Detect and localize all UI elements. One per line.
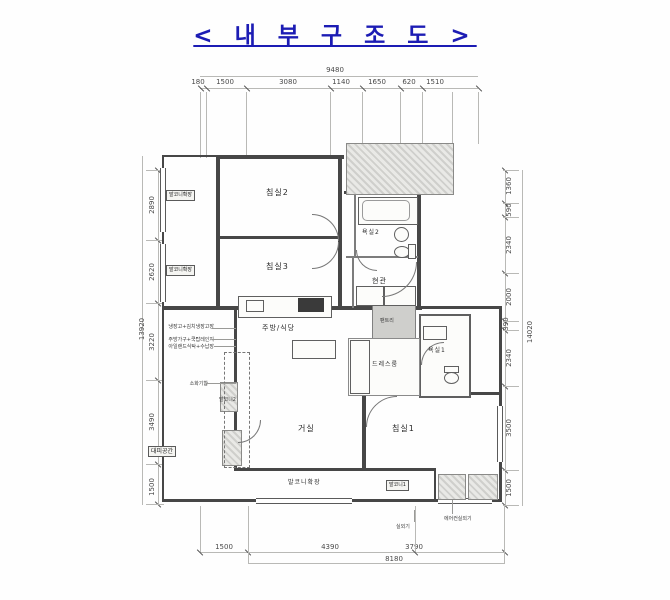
extension-line [503,217,519,218]
door-arc [356,250,377,271]
extension-line [200,92,201,158]
extension-line [452,92,453,144]
door-arc [312,214,339,241]
leader-line [212,328,236,329]
extension-line [503,273,519,274]
annotation-note4: 소화기함 [164,381,208,387]
room-label-bedroom2: 침실2 [266,188,289,197]
room-label-balcony2: 발코니2 [219,397,236,403]
wall [216,155,220,310]
leader-line [212,339,236,340]
leader-line [414,510,415,522]
refuge-dashed-zone [224,352,250,468]
dim-top-seg: 180 [190,78,206,86]
window [256,498,352,504]
dim-left-seg: 3490 [148,408,156,436]
dim-left-seg: 1500 [148,473,156,501]
dim-bottom-seg: 1500 [206,543,242,551]
wall [362,392,366,470]
extension-line [503,386,519,387]
leader-line [452,500,453,514]
extension-line [503,170,519,171]
outdoor-unit-box [438,474,466,500]
dim-line-bottom-chain [200,552,505,553]
wall [234,468,434,471]
outdoor-unit-box [468,474,498,500]
dim-top-seg: 1140 [324,78,358,86]
extension-line [146,504,164,505]
room-label-pantry: 팬트리 [380,318,394,324]
annotation-outdoor-unit: 실외기 [396,524,410,530]
extension-line [503,330,519,331]
wall [162,306,164,501]
annotation-note1: 냉장고+김치냉장고장 [158,324,214,330]
extension-line [478,92,479,144]
room-label-dressroom: 드레스룸 [372,360,398,369]
room-label-bedroom3: 침실3 [266,262,289,271]
extension-line [503,470,519,471]
dim-bottom-seg: 4390 [312,543,348,551]
toilet-tank [408,244,416,259]
room-label-entrance: 현관 [372,277,387,286]
wall [216,155,344,159]
washbasin [394,227,409,242]
dim-right-seg: 3500 [505,414,513,442]
leader-line [214,346,236,347]
stove [298,298,324,312]
dim-left-total: 13920 [138,311,146,347]
annotation-note3: 아일랜드식탁+수납장 [158,344,214,350]
door-arc [312,242,339,269]
dim-line-top-chain [200,88,478,89]
wall-partition [352,256,354,308]
extension-line [248,506,249,563]
dim-top-seg: 1500 [209,78,241,86]
extension-line [246,92,247,156]
dim-right-seg: 390 [502,313,510,335]
dim-line-right-total [522,170,523,506]
extension-line [206,92,207,158]
room-label-living: 거실 [298,424,315,433]
extension-line [415,506,416,552]
floorplan-page: < 내 부 구 조 도 > 9480 180 1500 3080 1140 16… [0,0,670,600]
dim-left-seg: 2890 [148,191,156,219]
room-label-bath2: 욕실2 [362,228,380,237]
extension-line [503,203,519,204]
dim-bottom-total: 8180 [376,555,412,563]
label-balcony-ext-lower: 발코니확장 [166,265,195,276]
dim-right-total: 14020 [526,314,534,350]
dim-top-seg: 1510 [418,78,452,86]
wardrobe [350,340,370,394]
wall [338,158,342,308]
door-arc [238,420,261,443]
room-label-refuge: 대피공간 [148,446,176,457]
dim-right-seg: 590 [505,196,513,224]
extension-line [503,505,519,506]
room-label-balcony1: 발코니1 [386,480,409,491]
annotation-note2: 주방가구+쿡탑레인지 [158,337,214,343]
wall [420,306,502,309]
dim-top-seg: 3080 [270,78,306,86]
hatched-exterior-area [346,143,454,195]
dining-table [292,340,336,359]
door-arc [366,396,397,427]
dim-top-seg: 1650 [360,78,394,86]
page-title: < 내 부 구 조 도 > [0,16,670,50]
wall [434,468,436,502]
dim-left-seg: 2620 [148,258,156,286]
dim-bottom-seg: 3790 [396,543,432,551]
wall [162,155,220,157]
wall-partition [354,194,356,256]
annotation-ac-outdoor-unit: 에어컨실외기 [444,516,480,522]
dim-right-seg: 2000 [505,283,513,311]
window [497,406,503,462]
label-balcony-ext-upper: 발코니확장 [166,190,195,201]
shoe-cabinet [356,286,384,306]
extension-line [330,92,331,156]
extension-line [400,92,401,144]
extension-line [504,506,505,563]
room-label-bedroom1: 침실1 [392,424,415,433]
leader-line [206,383,236,384]
wall [499,306,502,502]
dim-left-seg: 3220 [148,328,156,356]
washbasin [423,326,447,340]
kitchen-sink [246,300,264,312]
dim-right-seg: 2340 [505,344,513,372]
dim-right-seg: 1500 [505,474,513,502]
dim-line-bottom-total [248,563,505,564]
dim-line-top-total [200,76,478,77]
dim-top-total: 9480 [313,66,357,74]
room-label-balcony-extension: 발코니확장 [288,478,321,487]
toilet [444,372,459,384]
room-label-kitchen: 주방/식당 [262,324,295,333]
extension-line [503,321,519,322]
room-label-bath1: 욕실1 [428,346,446,355]
bathtub-inner [362,200,410,221]
dim-right-seg: 2340 [505,231,513,259]
extension-line [200,506,201,552]
